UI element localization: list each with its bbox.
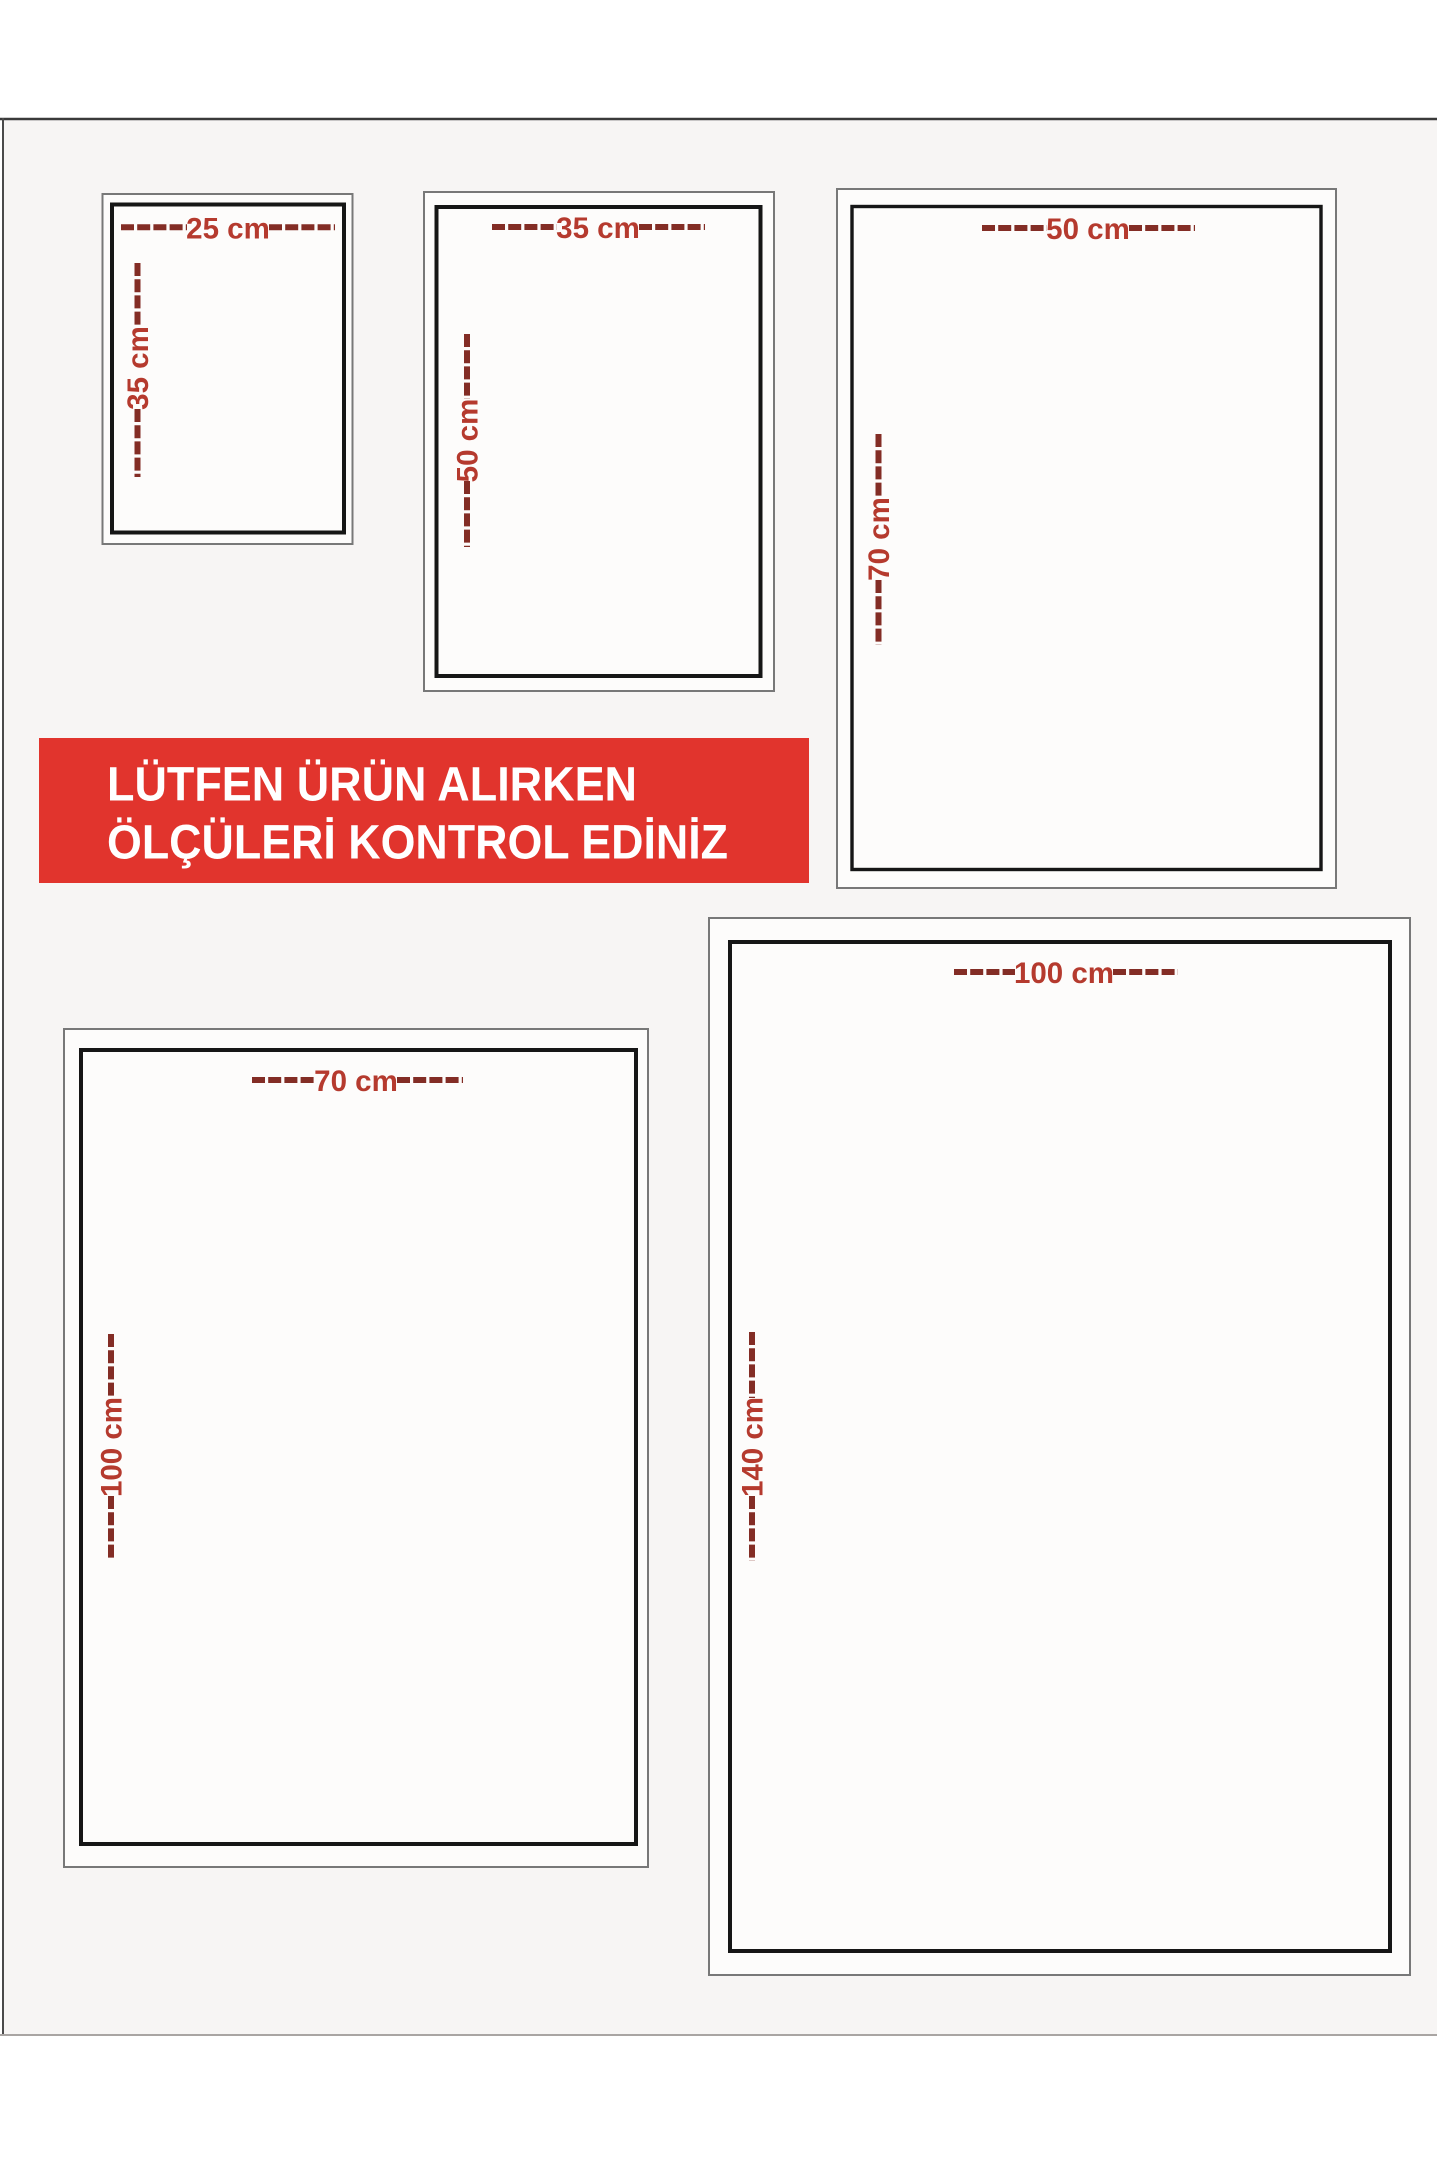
- svg-text:25 cm: 25 cm: [186, 212, 270, 245]
- svg-text:LÜTFEN ÜRÜN ALIRKEN: LÜTFEN ÜRÜN ALIRKEN: [107, 759, 637, 812]
- svg-text:100 cm: 100 cm: [96, 1397, 129, 1497]
- svg-text:140 cm: 140 cm: [737, 1397, 770, 1497]
- svg-text:35 cm: 35 cm: [556, 212, 640, 245]
- svg-text:100 cm: 100 cm: [1014, 957, 1114, 990]
- svg-text:50 cm: 50 cm: [452, 399, 485, 483]
- svg-text:50 cm: 50 cm: [1046, 213, 1130, 246]
- svg-text:ÖLÇÜLERİ KONTROL EDİNİZ: ÖLÇÜLERİ KONTROL EDİNİZ: [107, 817, 728, 870]
- svg-text:70 cm: 70 cm: [863, 497, 896, 581]
- svg-text:35 cm: 35 cm: [122, 326, 155, 410]
- svg-text:70 cm: 70 cm: [314, 1065, 398, 1098]
